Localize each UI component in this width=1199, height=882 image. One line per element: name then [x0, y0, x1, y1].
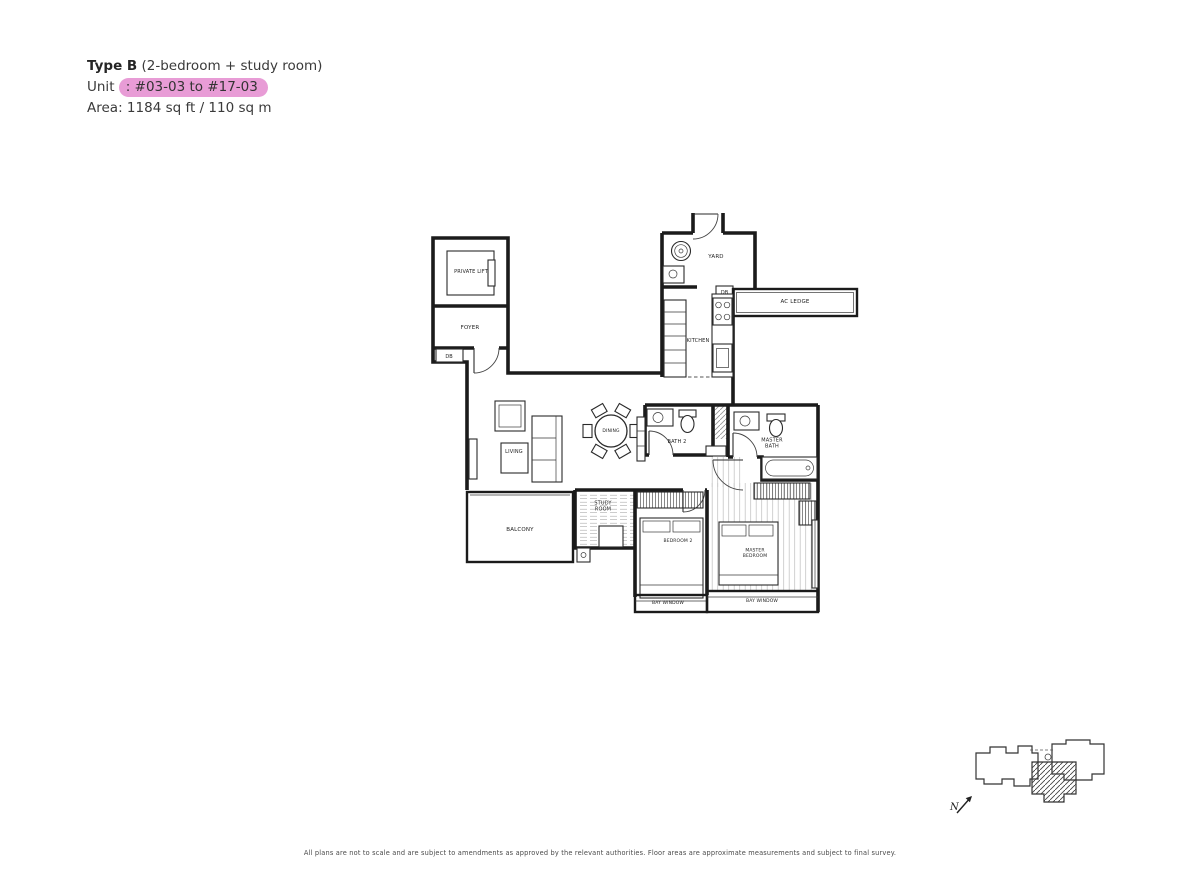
- armchair: [495, 401, 525, 431]
- disclaimer-text: All plans are not to scale and are subje…: [303, 849, 895, 857]
- room-label-bath2: BATH 2: [668, 439, 687, 445]
- room-label-master-bedroom: MASTER BEDROOM: [741, 548, 770, 558]
- room-label-yard: YARD: [708, 254, 723, 260]
- room-label-private-lift: PRIVATE LIFT: [454, 269, 488, 275]
- room-label-bedroom2: BEDROOM 2: [663, 538, 692, 543]
- room-label-ac-ledge: AC LEDGE: [780, 299, 809, 305]
- key-plan: [976, 740, 1104, 802]
- room-label-foyer: FOYER: [461, 325, 480, 331]
- floor-plan-drawing: DB DB: [0, 0, 1199, 882]
- sideboard: [637, 417, 645, 461]
- room-label-kitchen: KITCHEN: [687, 338, 710, 344]
- sofa: [532, 416, 562, 482]
- study-desk: [599, 526, 623, 547]
- corridor-floor: [709, 457, 743, 487]
- key-plan-left-wing: [976, 746, 1038, 786]
- room-label-living: LIVING: [505, 449, 523, 455]
- room-label-master-bath: MASTER BATH: [759, 437, 785, 449]
- room-label-study-room: STUDY ROOM: [589, 500, 618, 512]
- bedroom2-wardrobe: [637, 492, 703, 508]
- master-wardrobe: [754, 483, 810, 499]
- bath2-fixtures: [647, 409, 696, 433]
- key-plan-unit-highlight: [1032, 762, 1076, 802]
- master-bath-sink: [734, 412, 759, 430]
- room-label-dining: DINING: [602, 428, 619, 433]
- tv-console: [469, 439, 477, 479]
- water-heater: [663, 266, 684, 283]
- north-label: N: [949, 802, 960, 813]
- db-box-foyer: DB: [436, 349, 463, 362]
- yard-fixtures: [663, 242, 691, 284]
- kitchen-counters: [664, 294, 733, 377]
- living-furniture: [469, 401, 562, 482]
- db-foyer-label: DB: [445, 354, 453, 360]
- bath2-sink: [647, 409, 673, 426]
- ac-unit: [577, 548, 590, 562]
- services-shaft: [714, 406, 727, 439]
- stove: [713, 298, 732, 325]
- room-label-balcony: BALCONY: [506, 527, 533, 533]
- bed-2: [640, 518, 703, 598]
- room-label-bay-window-2: BAY WINDOW: [746, 598, 778, 603]
- room-label-bay-window-1: BAY WINDOW: [652, 600, 684, 605]
- north-arrow: N: [949, 796, 972, 813]
- vanity-ledge: [706, 446, 726, 456]
- coffee-table: [501, 443, 528, 473]
- floor-plan-page: Type B (2-bedroom + study room) Unit : #…: [0, 0, 1199, 882]
